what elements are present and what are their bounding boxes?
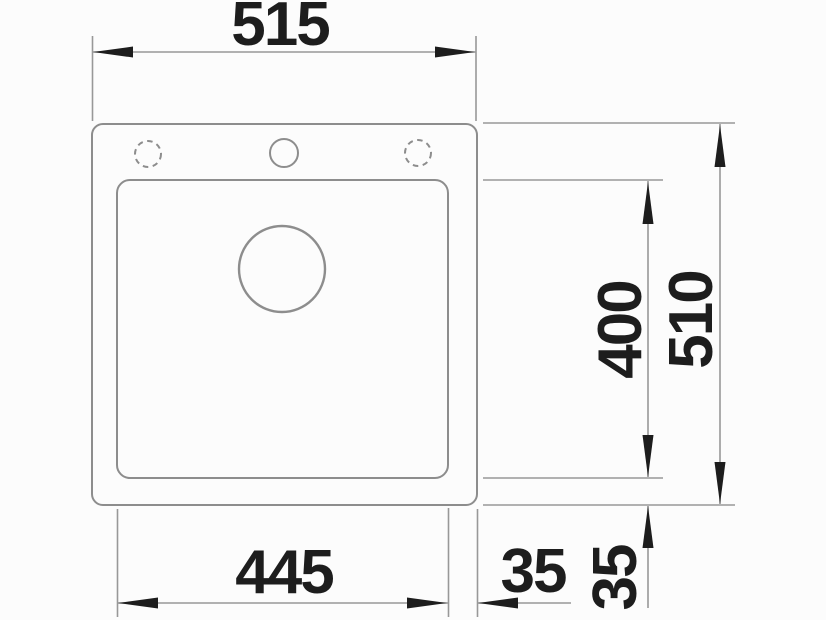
tap-hole-center-icon: [270, 139, 298, 167]
basin-edge: [117, 180, 448, 478]
dim-label-rim-right: 35: [501, 537, 566, 606]
dim-label-basin-height: 400: [586, 281, 655, 378]
sink-outer-edge: [92, 124, 477, 505]
arrowhead-up-icon: [715, 125, 726, 167]
tap-hole-left-icon: [135, 141, 161, 167]
arrowhead-right-icon: [407, 598, 447, 609]
dim-label-outer-height: 510: [657, 271, 726, 368]
arrowhead-left-icon: [93, 47, 133, 58]
arrowhead-up-icon: [643, 182, 654, 224]
arrowhead-down-icon: [643, 435, 654, 477]
dimension-basin-width: 445: [117, 508, 449, 617]
arrowhead-left-icon: [118, 598, 158, 609]
dim-label-outer-width: 515: [231, 0, 329, 59]
drain-hole: [239, 226, 325, 312]
dimension-rim-bottom: 35: [581, 506, 654, 610]
dimension-basin-height: 400: [483, 180, 663, 478]
technical-drawing-canvas: 515 510 400 445: [0, 0, 826, 620]
dim-label-basin-width: 445: [235, 538, 333, 607]
arrowhead-down-icon: [715, 462, 726, 504]
sink-top-view: [92, 124, 477, 505]
dimension-rim-right: 35: [477, 509, 571, 617]
tap-hole-right-icon: [405, 140, 431, 166]
sink-dimension-drawing: 515 510 400 445: [0, 0, 826, 620]
arrowhead-up-icon: [643, 506, 654, 548]
dimension-outer-width: 515: [92, 0, 476, 121]
arrowhead-right-icon: [435, 47, 475, 58]
dim-label-rim-bottom: 35: [581, 545, 650, 610]
